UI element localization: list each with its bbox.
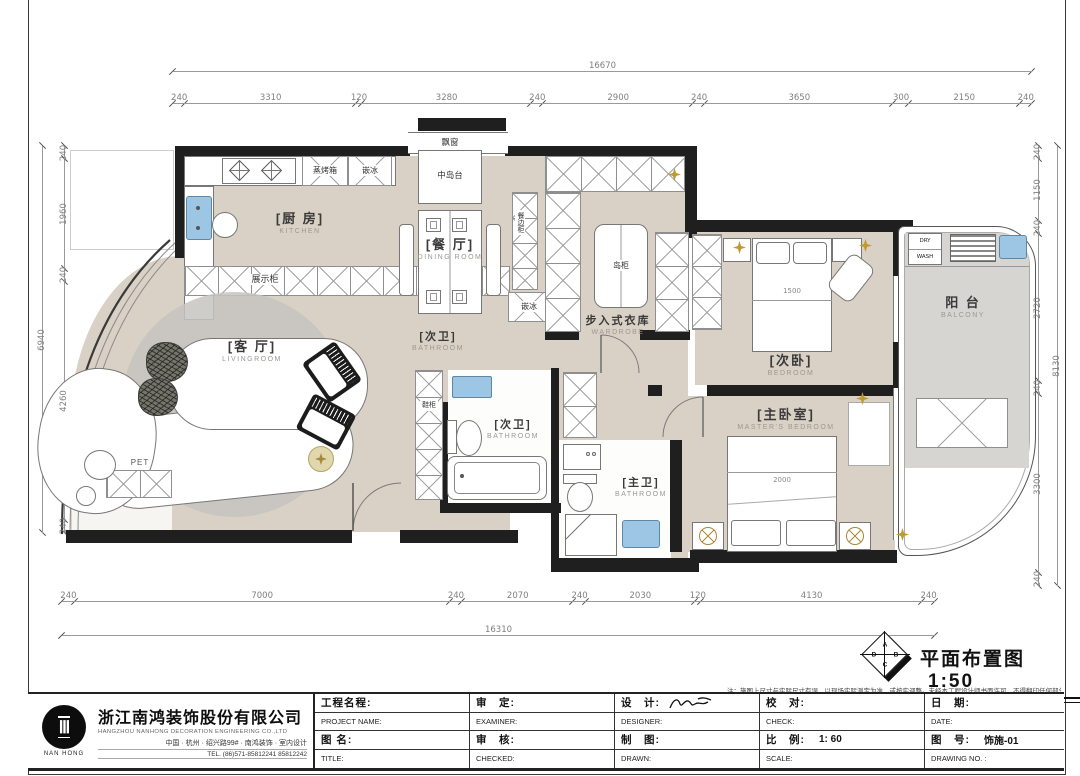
fridge-label: 嵌冰 [360,165,380,176]
balcony-cabinet [916,398,1008,448]
zone-symbol: A B C D [858,634,914,684]
ceiling-fan-icon [846,527,864,545]
dim-right-total: 8130 [1049,146,1065,586]
company-address: 中国 · 杭州 · 绍兴路99# · 南鸿装饰 · 室内设计 [98,738,307,750]
cell-title-en: TITLE: [315,750,470,769]
cell-checked-zh: 审 核: [470,731,615,750]
company-tel: TEL. (86)571-85812241 85812242 [98,751,307,759]
dining-side-cabinet-label: 餐边柜 [515,210,525,235]
toilet-bowl [567,482,593,512]
room-label-kitchen: [厨 房] KITCHEN [276,208,324,235]
center-island-label: 中岛台 [435,170,465,181]
pet-area-label: PET [129,457,152,468]
wall-segment [670,440,682,552]
dining-chair [452,290,467,304]
dining-chair [452,218,467,232]
faucet-dot [196,206,200,210]
shoe-cabinet-label: 鞋柜 [420,400,438,411]
washer-dryer-stack: DRY WASH [908,233,942,265]
drawing-title-text: 平面布置图 [920,649,1025,670]
balcony-sink [999,235,1027,259]
zone-letter: A [883,642,888,649]
fridge-label-2: 嵌冰 [519,301,539,312]
dining-bench [486,224,501,296]
designer-signature [668,695,714,711]
plant [146,342,188,382]
room-label-bath2-hall: [次卫] BATHROOM [412,328,464,352]
cell-designer-zh: 设 计: [615,694,760,713]
medallion-star-icon [315,453,327,465]
pillar-icon: Ⅲ [58,716,71,738]
master-bed-width-label: 2000 [773,476,791,484]
ceiling-fan-icon [699,527,717,545]
scale-value: 1: 60 [819,734,842,745]
shoe-cabinet [415,370,443,500]
cell-check-en: CHECK: [760,713,925,732]
wall-segment [400,530,518,543]
nightstand [723,238,751,262]
bay-window-label: 飘窗 [439,137,460,148]
company-logo-icon: Ⅲ [42,705,86,749]
cell-checked-en: CHECKED: [470,750,615,769]
company-logo: Ⅲ NAN HONG [38,705,90,757]
wall-segment [695,220,913,232]
wall-segment [175,146,184,258]
title-block-table: 工程名程: 审 定: 设 计: 校 对: 日 期: PROJECT NAME: … [315,694,1064,768]
ac-unit [950,234,996,262]
steam-oven-label: 蒸烤箱 [311,165,339,176]
wall-segment [440,503,561,513]
dim-bottom-segments: 2407000240207024020301204130240 [62,588,935,604]
wardrobe-cabinet-right [655,232,689,332]
dining-side-cabinet [512,192,538,290]
dryer-label: DRY [909,234,941,250]
wall-segment [505,146,697,156]
zone-letter: C [883,662,888,669]
pet-cabinet [106,470,172,498]
title-block: Ⅲ NAN HONG 浙江南鸿装饰股份有限公司 HANGZHOU NANHONG… [28,692,1064,771]
dining-bench [399,224,414,296]
room-label-balcony: 阳 台 BALCONY [941,292,985,319]
display-cabinet-label: 展示柜 [249,274,280,285]
wall-segment [551,368,559,570]
company-text: 浙江南鸿装饰股份有限公司 HANGZHOU NANHONG DECORATION… [90,704,307,759]
zone-letter: D [872,652,877,659]
room-label-master: [主卧室] MASTER'S BEDROOM [737,404,834,431]
wall-segment [175,146,410,156]
pillow [731,520,781,546]
pet-toilet [76,486,96,506]
bedroom2-closet [692,234,722,330]
cell-title-zh: 图 名: [315,731,470,750]
bath2-sink [452,376,492,398]
dining-chair [426,290,441,304]
island-cabinet-label: 岛柜 [611,260,631,271]
room-label-living: [客 厅] LIVINGROOM [222,336,282,363]
corridor-cabinet [563,372,597,438]
cell-examiner-en: EXAMINER: [470,713,615,732]
cell-scale-zh: 比 例:1: 60 [760,731,925,750]
cell-project-en: PROJECT NAME: [315,713,470,732]
wall-segment [66,530,352,543]
company-name: 浙江南鸿装饰股份有限公司 [98,704,307,728]
wall-bay-window-outer [418,118,506,131]
floor-medallion [308,446,334,472]
dim-top-segments: 24033101203280240290024036503002150240 [173,90,1032,106]
cell-drawingno-zh: 图 号:饰施-01 [925,731,1064,750]
cabinet-knob [592,452,596,456]
zone-symbol-axis [860,654,910,655]
wall-segment [551,558,699,572]
cell-date-zh: 日 期: [925,694,1064,713]
toilet-bowl [456,420,482,456]
company-name-en: HANGZHOU NANHONG DECORATION ENGINEERING … [98,729,307,735]
cell-scale-en: SCALE: [760,750,925,769]
room-label-bath2: [次卫] BATHROOM [487,416,539,440]
wardrobe-cabinet-left [545,192,581,332]
cell-drawn-zh: 制 图: [615,731,760,750]
masterbath-cabinet [563,444,601,470]
balcony-niche-line [905,266,1029,267]
drawing-number: 饰施-01 [984,732,1018,747]
shower-stall [565,514,617,556]
cell-drawingno-en: DRAWING NO. : [925,750,1064,769]
room-label-dining: [餐 厅] DINING ROOM [418,234,483,261]
cell-date-en: DATE: [925,713,1064,732]
master-door [662,396,704,438]
room-label-wardrobe: 步入式衣库 WARDROBE [586,312,651,336]
exterior-niche [70,150,174,250]
wall-segment [707,385,905,396]
dim-top-total: 16670 [173,58,1032,74]
plant [138,378,178,416]
bed2-width-label: 1500 [783,287,801,295]
pet-bowl [84,450,116,480]
window-bench [848,402,890,466]
company-logo-text: NAN HONG [38,751,90,757]
cabinet-knob [586,452,590,456]
cell-designer-en: DESIGNER: [615,713,760,732]
pillow [756,242,790,264]
pillow [786,520,836,546]
dim-bottom-total: 16310 [62,622,935,638]
cell-examiner-zh: 审 定: [470,694,615,713]
floor-plan-sheet: { "drawing": { "plan_title": "平面布置图", "p… [0,0,1080,776]
bathtub [447,456,547,500]
washer-label: WASH [909,250,941,264]
cell-drawn-en: DRAWN: [615,750,760,769]
room-label-bedroom2: [次卧] BEDROOM [768,350,815,377]
wall-segment [648,385,662,396]
room-label-masterbath: [主卫] BATHROOM [615,474,667,498]
kitchen-sink [186,196,212,240]
blanket-line [752,300,832,301]
entry-door [352,482,402,532]
pillow [793,242,827,264]
company-block: Ⅲ NAN HONG 浙江南鸿装饰股份有限公司 HANGZHOU NANHONG… [28,694,315,768]
blanket-line [727,472,837,473]
faucet-dot [196,226,200,230]
wardrobe-cabinet-top [545,156,685,192]
masterbath-sink [622,520,660,548]
tub-drain-dot [460,474,464,478]
prep-bowl [212,212,238,238]
cell-project-zh: 工程名程: [315,694,470,713]
wardrobe-door [600,334,640,374]
cell-check-zh: 校 对: [760,694,925,713]
zone-letter: B [894,652,899,659]
zone-symbol-axis [884,631,885,678]
dining-chair [426,218,441,232]
